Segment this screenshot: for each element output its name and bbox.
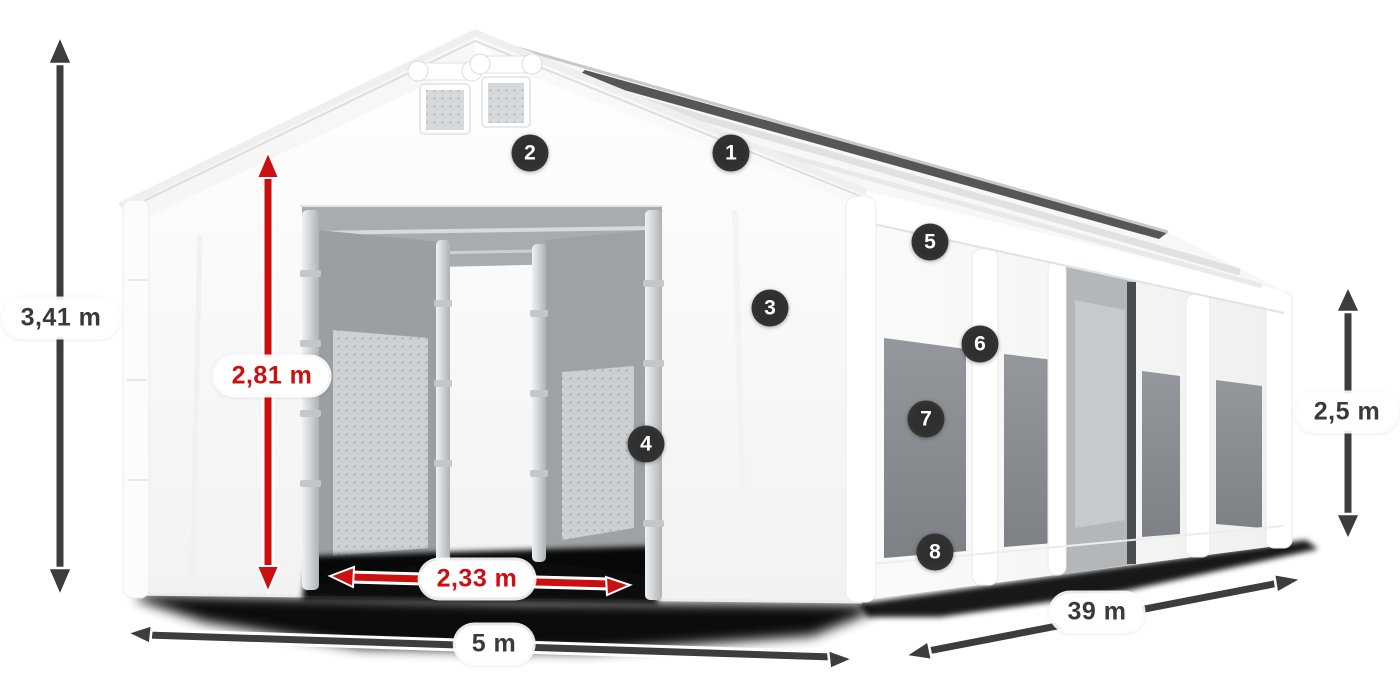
side-window xyxy=(884,338,966,558)
door-leaf-left xyxy=(318,230,442,584)
feature-marker-6[interactable]: 6 xyxy=(962,326,999,363)
tent-dimension-diagram: 3,41 m 2,81 m 2,33 m 5 m 39 m 2,5 m 1 2 … xyxy=(0,0,1400,700)
tent-illustration xyxy=(0,0,1400,700)
feature-marker-3[interactable]: 3 xyxy=(752,290,789,327)
dim-label-entrance-width: 2,33 m xyxy=(421,561,534,598)
corner-post xyxy=(846,196,876,602)
dim-label-total-height: 3,41 m xyxy=(5,300,118,337)
dim-label-entrance-height: 2,81 m xyxy=(216,358,329,395)
dim-label-tent-length: 39 m xyxy=(1052,594,1143,631)
feature-marker-4[interactable]: 4 xyxy=(628,426,665,463)
vent-window-left xyxy=(408,61,482,134)
feature-marker-5[interactable]: 5 xyxy=(912,224,949,261)
feature-marker-8[interactable]: 8 xyxy=(917,534,954,571)
side-window xyxy=(1142,371,1180,537)
feature-marker-1[interactable]: 1 xyxy=(713,135,750,172)
feature-marker-2[interactable]: 2 xyxy=(512,135,549,172)
door-leaf-right xyxy=(546,230,648,576)
dim-label-side-height: 2,5 m xyxy=(1298,394,1396,431)
side-window xyxy=(1004,354,1054,547)
side-window xyxy=(1216,380,1262,528)
side-open-section xyxy=(1062,266,1136,574)
dim-label-tent-width: 5 m xyxy=(456,626,533,663)
feature-marker-7[interactable]: 7 xyxy=(908,401,945,438)
